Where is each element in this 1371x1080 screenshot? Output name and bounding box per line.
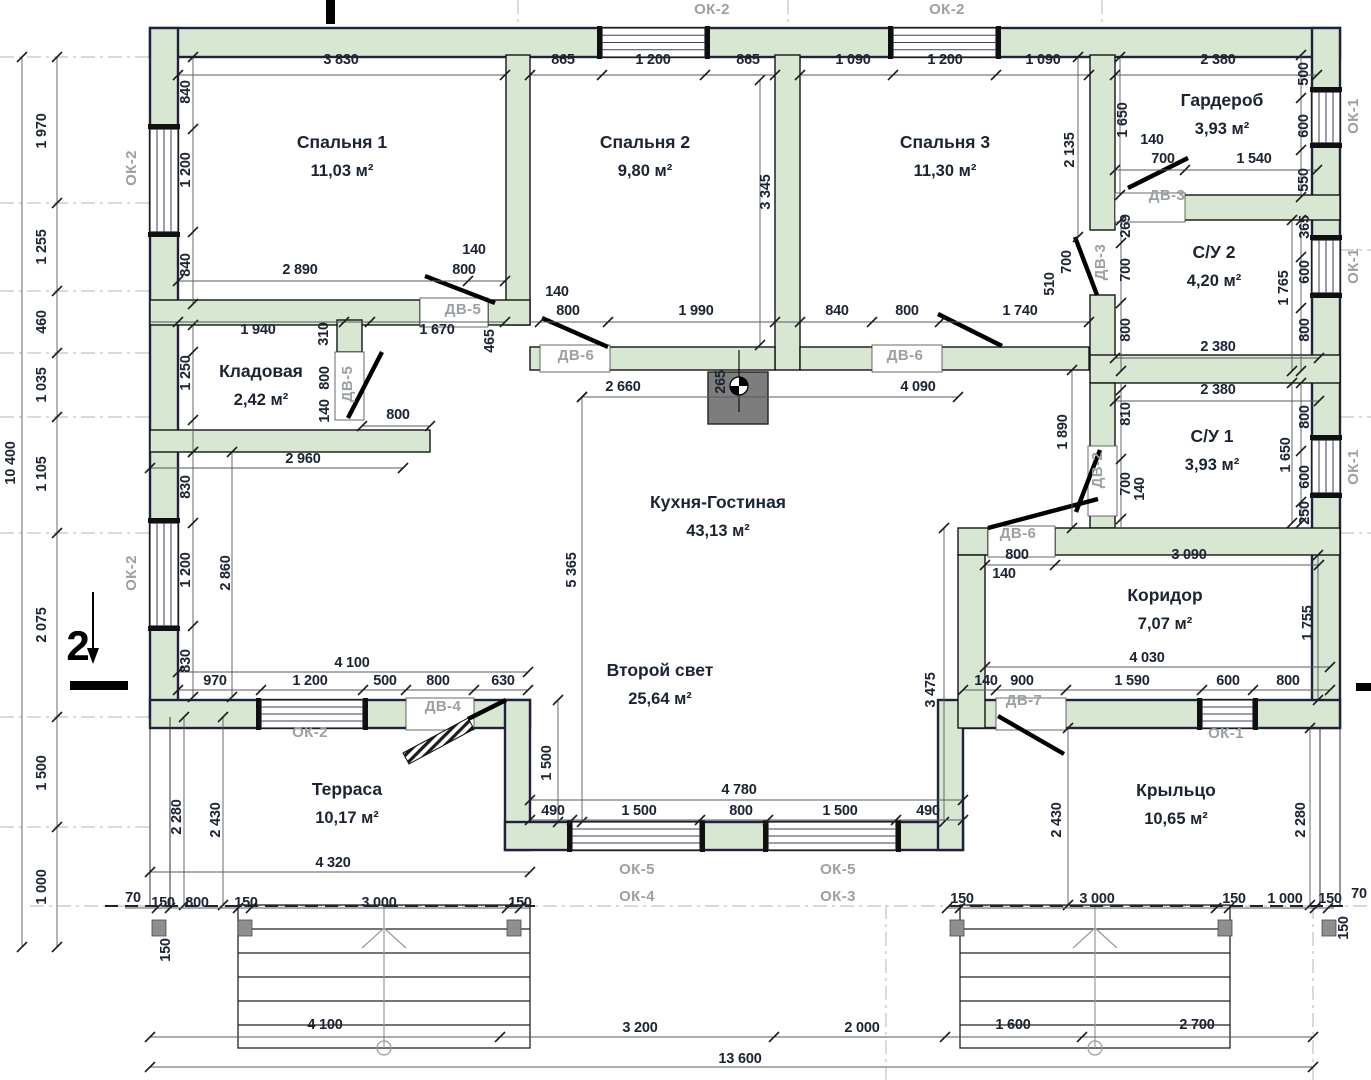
interior-wall	[1090, 55, 1115, 230]
dimension-label: 150	[1222, 891, 1246, 907]
dimension-label: 840	[825, 303, 849, 319]
dimension-label: 1 500	[34, 755, 50, 790]
dimension-label: 150	[1318, 891, 1342, 907]
room-name: Спальня 1	[297, 132, 387, 152]
dimension-label: 150	[508, 895, 532, 911]
interior-wall	[800, 347, 1089, 370]
room-area: 3,93 м²	[1185, 456, 1240, 474]
dimension-label: 1 650	[1278, 437, 1294, 472]
dimension-label: 2 960	[285, 451, 320, 467]
dimension-label: 1 255	[34, 229, 50, 264]
dimension-label: 70	[125, 890, 141, 906]
dimension-label: 500	[1296, 62, 1312, 86]
entrance-steps	[105, 905, 1345, 1055]
dimension-label: 800	[426, 673, 450, 689]
dimension-label: 4 320	[315, 855, 350, 871]
post	[152, 920, 166, 936]
dimension-label: 800	[895, 303, 919, 319]
dimension-label: 1 670	[419, 322, 454, 338]
dimension-label: 700	[1151, 151, 1175, 167]
dimension-label: 810	[1118, 402, 1134, 426]
room-area: 2,42 м²	[234, 391, 289, 409]
dimension-label: 465	[482, 329, 498, 353]
dimension-label: 865	[551, 52, 575, 68]
window-cap	[256, 698, 261, 730]
dimension-label: 140	[974, 673, 998, 689]
dimension-label: 2 430	[1049, 802, 1065, 837]
window-cap	[896, 820, 901, 852]
dimension-label: 2 380	[1200, 339, 1235, 355]
interior-wall	[958, 528, 988, 555]
dimension-label: 830	[178, 649, 194, 673]
room-area: 11,03 м²	[311, 162, 374, 180]
post	[950, 920, 964, 936]
dimension-label: 840	[178, 80, 194, 104]
dimension-label: 4 100	[334, 655, 369, 671]
dimension-label: 1 765	[1276, 270, 1292, 305]
post	[1218, 920, 1232, 936]
dimension-label: 2 380	[1200, 382, 1235, 398]
dimension-label: 1 200	[292, 673, 327, 689]
dimension-label: 500	[373, 673, 397, 689]
door-leaf	[938, 314, 1002, 346]
room-area: 9,80 м²	[618, 162, 673, 180]
room-area: 25,64 м²	[628, 690, 692, 708]
dimension-label: 1 890	[1055, 414, 1071, 449]
dimension-label: 1 940	[240, 322, 275, 338]
room-area: 10,17 м²	[315, 809, 379, 827]
dimension-label: 800	[1297, 318, 1313, 342]
post	[1322, 920, 1336, 936]
dimension-label: 800	[729, 803, 753, 819]
dimension-label: 970	[203, 673, 227, 689]
room-name: Спальня 2	[600, 132, 690, 152]
dimension-label: 3 475	[923, 672, 939, 707]
window-cap	[1310, 143, 1342, 148]
window-tag: ОК-2	[694, 1, 730, 18]
door-tag: ДВ-6	[558, 347, 594, 364]
dimension-label: 2 700	[1179, 1017, 1214, 1033]
dimension-label: 150	[1336, 916, 1352, 940]
dimension-label: 830	[178, 475, 194, 499]
room-name: Гардероб	[1181, 90, 1264, 110]
dimension-label: 1 200	[178, 552, 194, 587]
window-tag: ОК-2	[929, 1, 965, 18]
room-name: Коридор	[1127, 585, 1202, 605]
dimension-label: 2 380	[1200, 52, 1235, 68]
dimension-label: 2 860	[218, 555, 234, 590]
dimension-label: 1 090	[835, 52, 870, 68]
window-tag: ОК-4	[619, 888, 655, 905]
door-tag: ДВ-6	[887, 347, 923, 364]
dimension-label: 490	[916, 803, 940, 819]
window-cap	[1310, 435, 1342, 440]
dimension-label: 140	[462, 242, 486, 258]
dimension-label: 800	[386, 407, 410, 423]
dimension-label: 150	[158, 938, 174, 962]
dimension-label: 269	[1118, 214, 1134, 238]
dimension-label: 13 600	[718, 1051, 761, 1067]
dimension-label: 150	[234, 895, 258, 911]
dimension-label: 265	[713, 370, 729, 394]
window-cap	[1253, 698, 1258, 730]
dimension-label: 140	[992, 566, 1016, 582]
door-tag: ДВ-6	[1000, 525, 1036, 542]
dimension-label: 840	[178, 253, 194, 277]
dimension-label: 3 345	[758, 174, 774, 209]
dimension-label: 800	[556, 303, 580, 319]
dimension-label: 1 755	[1300, 605, 1316, 640]
window-cap	[888, 26, 893, 59]
room-name: Кладовая	[219, 361, 303, 381]
dimension-label: 550	[1296, 168, 1312, 192]
dimension-label: 800	[1118, 318, 1134, 342]
dimension-label: 2 000	[844, 1020, 879, 1036]
door-tag: ДВ-5	[445, 301, 481, 318]
dimension-label: 630	[491, 673, 515, 689]
dimension-label: 1 650	[1115, 102, 1131, 137]
window-tag: ОК-5	[619, 861, 655, 878]
dimension-label: 1 970	[34, 113, 50, 148]
door-tag: ДВ-7	[1006, 692, 1042, 709]
dimension-label: 800	[317, 366, 333, 390]
dimension-label: 70	[1351, 886, 1367, 902]
window-cap	[700, 820, 705, 852]
window-cap	[363, 698, 368, 730]
section-cut-right-icon	[1356, 683, 1371, 691]
door-leaf	[988, 499, 1098, 528]
dimension-label: 800	[1276, 673, 1300, 689]
dimension-label: 1 200	[178, 152, 194, 187]
window-tag: ОК-3	[820, 888, 856, 905]
floor-plan-page: 3 8308651 2008651 0901 2001 0902 3802 89…	[0, 0, 1371, 1080]
dimension-label: 1 500	[621, 803, 656, 819]
dimension-label: 3 200	[622, 1020, 657, 1036]
window-cap	[1310, 235, 1342, 240]
window-cap	[1197, 698, 1202, 730]
window-cap	[1310, 293, 1342, 298]
dimension-label: 3 000	[361, 895, 396, 911]
window-tag: ОК-1	[1345, 449, 1362, 485]
room-name: Крыльцо	[1136, 780, 1216, 800]
door-tag: ДВ-4	[425, 698, 462, 715]
dimension-label: 150	[950, 891, 974, 907]
window-cap	[148, 626, 180, 631]
dimension-label: 600	[1297, 260, 1313, 284]
window-cap	[996, 26, 1001, 59]
dimension-label: 490	[541, 803, 565, 819]
room-area: 7,07 м²	[1138, 615, 1193, 633]
dimension-label: 3 830	[323, 52, 358, 68]
dimension-label: 4 100	[307, 1017, 342, 1033]
window-tag: ОК-1	[1208, 725, 1244, 742]
window-cap	[597, 26, 602, 59]
dimension-label: 4 090	[900, 379, 935, 395]
room-area: 43,13 м²	[686, 522, 750, 540]
dimension-label: 865	[736, 52, 760, 68]
interior-wall	[506, 55, 530, 325]
dimension-label: 1 000	[34, 869, 50, 904]
dimension-label: 2 660	[605, 379, 640, 395]
window-cap	[1310, 493, 1342, 498]
dimension-label: 460	[34, 310, 50, 334]
dimension-label: 310	[316, 322, 332, 346]
dimension-label: 140	[545, 284, 569, 300]
dimension-label: 2 075	[34, 607, 50, 642]
dimension-label: 1 990	[678, 303, 713, 319]
dimension-label: 1 540	[1236, 151, 1271, 167]
room-area: 11,30 м²	[914, 162, 977, 180]
dimension-label: 5 365	[564, 552, 580, 587]
window-tag: ОК-1	[1345, 248, 1362, 284]
window-cap	[1310, 87, 1342, 92]
dimension-label: 1 740	[1002, 303, 1037, 319]
room-name: Кухня-Гостиная	[650, 492, 786, 512]
dimension-label: 2 135	[1062, 132, 1078, 167]
dimension-label: 700	[1059, 250, 1075, 274]
section-cut-top-icon	[326, 0, 335, 24]
door-tag: ДВ-3	[1092, 244, 1109, 280]
dimension-label: 4 030	[1129, 650, 1164, 666]
interior-wall	[150, 430, 430, 452]
door-tag: ДВ-5	[339, 366, 356, 402]
dimension-label: 365	[1297, 215, 1313, 239]
dimension-label: 900	[1010, 673, 1034, 689]
dimension-label: 1 500	[822, 803, 857, 819]
dimension-label: 150	[151, 895, 175, 911]
dimension-label: 10 400	[3, 441, 19, 484]
window-tag: ОК-2	[123, 150, 140, 186]
window-cap	[148, 518, 180, 523]
dimension-label: 4 780	[721, 782, 756, 798]
dimension-label: 800	[185, 895, 209, 911]
dimension-label: 800	[1297, 405, 1313, 429]
room-name: С/У 2	[1193, 242, 1236, 262]
dimension-label: 1 590	[1114, 673, 1149, 689]
dimension-label: 2 280	[1293, 802, 1309, 837]
dimension-label: 700	[1118, 258, 1134, 282]
dimension-label: 1 105	[34, 456, 50, 491]
window-tag: ОК-2	[123, 555, 140, 591]
door-tag: ДВ-3	[1149, 187, 1185, 204]
dimension-label: 600	[1297, 465, 1313, 489]
window-cap	[705, 26, 710, 59]
interior-wall	[150, 300, 420, 325]
dimension-label: 2 430	[208, 802, 224, 837]
post	[238, 920, 252, 936]
room-name: Спальня 3	[900, 132, 990, 152]
dimension-label: 600	[1296, 114, 1312, 138]
dimension-label: 800	[452, 262, 476, 278]
dimension-label: 140	[317, 399, 333, 423]
door-tag: ДВ-2	[1089, 452, 1106, 488]
section-marker-label: 2	[66, 622, 89, 669]
dimension-label: 250	[1297, 501, 1313, 525]
dimension-label: 2 890	[282, 262, 317, 278]
dimension-label: 1 200	[927, 52, 962, 68]
dimension-label: 1 500	[539, 745, 555, 780]
dimension-label: 3 000	[1079, 891, 1114, 907]
dimension-label: 800	[1005, 547, 1029, 563]
dimension-label: 1 250	[178, 355, 194, 390]
room-name: С/У 1	[1191, 426, 1234, 446]
room-area: 3,93 м²	[1195, 120, 1250, 138]
post	[507, 920, 521, 936]
interior-wall	[958, 555, 985, 728]
dimension-label: 140	[1140, 132, 1164, 148]
room-area: 4,20 м²	[1187, 272, 1242, 290]
dimension-label: 1 600	[995, 1017, 1030, 1033]
floor-plan-drawing: 3 8308651 2008651 0901 2001 0902 3802 89…	[0, 0, 1371, 1080]
window-tag: ОК-5	[820, 861, 856, 878]
dimension-label: 140	[1132, 477, 1148, 501]
window-cap	[148, 232, 180, 237]
window-tag: ОК-1	[1345, 98, 1362, 134]
room-name: Второй свет	[607, 660, 714, 680]
window-tag: ОК-2	[292, 724, 328, 741]
dimension-label: 1 090	[1025, 52, 1060, 68]
room-area: 10,65 м²	[1144, 810, 1208, 828]
dimension-label: 1 035	[34, 367, 50, 402]
interior-wall	[775, 55, 800, 370]
dimension-label: 600	[1216, 673, 1240, 689]
window-cap	[148, 124, 180, 129]
room-name: Терраса	[312, 779, 383, 799]
dimension-label: 2 280	[169, 799, 185, 834]
dimension-label: 510	[1042, 272, 1058, 296]
dimension-label: 1 000	[1267, 891, 1302, 907]
dimension-label: 1 200	[635, 52, 670, 68]
dimension-label: 3 090	[1171, 547, 1206, 563]
